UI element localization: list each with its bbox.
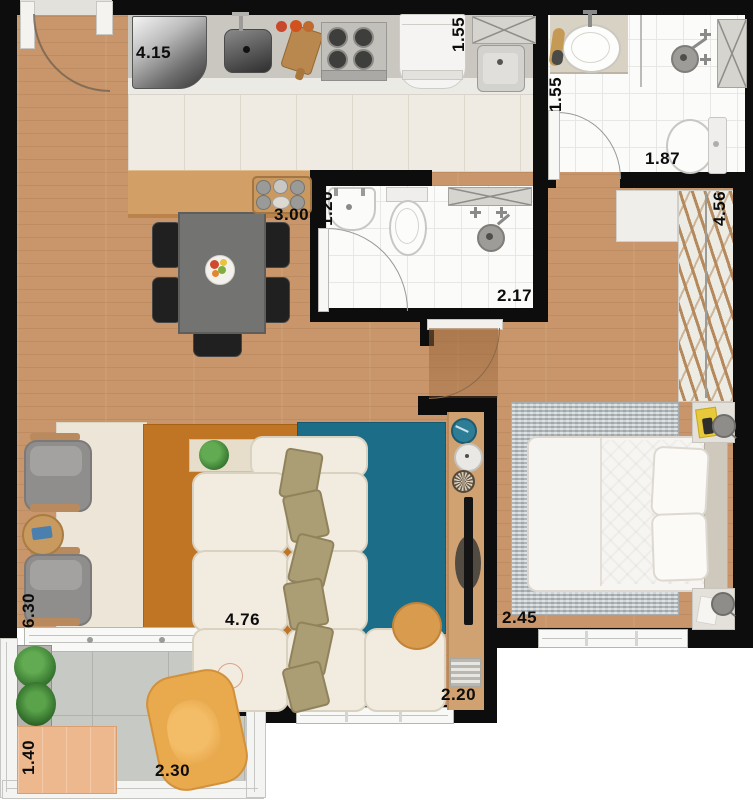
bed-pillow-2 [651,512,709,582]
bath1-cabinet-icon [717,19,747,88]
dim-living-length: 6.30 [20,593,37,628]
cup-3 [290,180,305,195]
bath1-tap-1b [704,29,707,40]
fruit-banana [220,259,227,266]
dim-bath2-length: 2.17 [497,287,532,304]
dim-balcony-depth: 1.40 [20,740,37,775]
cup-1 [256,180,271,195]
doormat-icon [450,658,481,687]
wall-living-bedroom-divider [482,410,497,723]
bedroom-window [538,629,688,648]
bath2-toilet-seat [395,208,419,244]
tomato-1 [276,21,287,32]
fruit-green [218,266,226,274]
bath1-shower-dot [680,54,687,61]
closet-rail [705,192,707,398]
bath2-shower-dot [486,233,493,240]
dim-tv-wall: 2.20 [441,686,476,703]
bath2-door-leaf [318,228,329,312]
burner-3 [327,49,348,70]
lamp-1-icon [712,414,736,438]
armchair-1-back [30,446,82,476]
washer-control-row [402,70,463,80]
bath2-sink-drain [346,204,352,210]
armchair-2-back [30,560,82,590]
entry-door-frame-left [20,1,35,49]
bath1-faucet-stem [588,12,592,27]
kitchen-faucet-icon [239,14,243,31]
dresser [616,190,678,242]
armchair-1-arm-bottom [30,504,80,512]
sink-drain [243,46,250,53]
dim-living-width: 4.76 [225,611,260,628]
sliding-door-handle-1 [87,637,93,643]
bath2-faucet-right [361,188,365,196]
stove-control-panel [321,70,387,81]
bedroom-window-mullion-2 [635,631,638,646]
bed-pillow-1 [650,446,710,519]
burner-4 [353,49,374,70]
wall-laundry-bath2-divider [533,0,548,322]
dim-bath1-length: 1.87 [645,150,680,167]
bedroom-window-mullion-1 [585,631,588,646]
tomato-3 [303,21,314,32]
bath1-toilet-button [713,141,719,147]
bath1-tap-2b [704,54,707,65]
dim-laundry-width: 1.55 [450,17,467,52]
kitchen-faucet-bar [232,12,249,16]
cup-4 [256,195,271,210]
ottoman-icon [392,602,442,650]
floor-plan: 4.15 1.55 1.55 1.87 1.20 2.17 3.00 4.56 … [0,0,753,800]
fruit-orange [212,270,219,277]
burner-1 [327,27,348,48]
dim-bath1-width: 1.55 [547,77,564,112]
plant-2-icon [16,682,56,726]
sofa-cushion-l1 [192,472,289,554]
lamp-2-icon [711,592,735,616]
living-window-rail [300,715,448,716]
dim-balcony-width: 2.30 [155,762,190,779]
tv-icon [464,497,473,625]
decor-plate-white-dot [465,454,469,458]
console-plant-icon [199,440,229,470]
dim-kitchen-bar: 3.00 [274,206,309,223]
dim-closet-length: 4.56 [711,191,728,226]
laundry-cabinet-icon [472,16,536,44]
cup-2 [273,179,288,194]
dim-bedroom-width: 2.45 [502,609,537,626]
bath2-tap-2b [500,207,503,218]
dim-bath2-width: 1.20 [318,191,335,226]
wall-right-mid [733,185,753,648]
bath1-sink-inner [571,32,610,63]
dim-kitchen-counter: 4.15 [136,44,171,61]
bedroom-window-rail [542,638,682,639]
wall-left [0,0,17,646]
tank-basin [483,53,518,84]
wall-bath2-top [310,170,432,186]
decor-plate-rosette-icon [452,470,475,493]
decor-plate-white-icon [454,443,483,472]
bath1-door-leaf [548,110,560,180]
balcony-rail-left-line [6,642,7,792]
bath2-tap-1b [474,207,477,218]
tomato-2 [290,20,302,32]
burner-2 [353,27,374,48]
tank-drain [497,59,503,65]
bath1-shower-divider [640,15,642,87]
bath2-shelf-icon [448,187,532,206]
sliding-door-handle-2 [159,637,165,643]
